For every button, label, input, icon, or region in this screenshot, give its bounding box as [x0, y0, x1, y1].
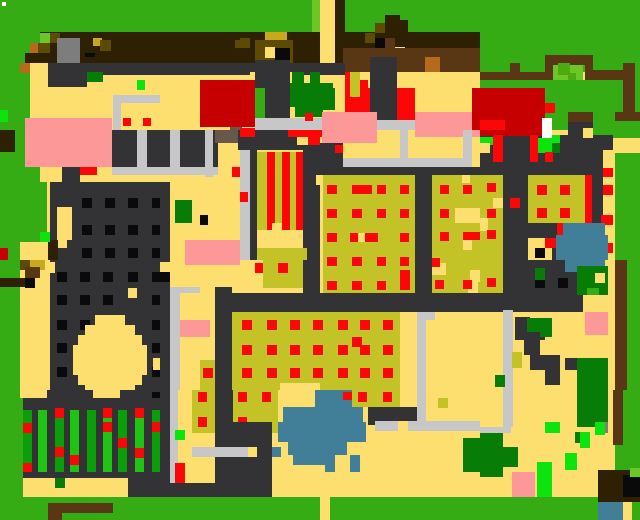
map-tile-paved-path [170, 130, 180, 167]
map-tile-berry-red [537, 185, 547, 195]
map-tile-berry-red [377, 281, 386, 290]
map-tile-hole [535, 248, 545, 258]
map-tile-water [563, 223, 605, 235]
map-tile-berry-red [327, 185, 337, 194]
map-tile-e2 [38, 410, 47, 472]
map-tile-marker [542, 130, 552, 138]
map-tile-berry-red [440, 232, 449, 241]
map-tile-berry-red [80, 167, 97, 175]
map-tile-berry-red [480, 120, 505, 130]
map-tile-wood-wall [568, 112, 593, 122]
map-tile-sand-floor [160, 262, 170, 272]
map-tile-marker [2, 2, 6, 6]
map-tile-berry-red [463, 232, 480, 240]
map-tile-hole [152, 320, 160, 330]
map-tile-hole [152, 295, 160, 305]
map-tile-hole [128, 225, 138, 235]
map-tile-sand-floor [278, 240, 290, 248]
map-tile-bright-plant [175, 430, 185, 440]
map-tile-olive-soil [38, 43, 50, 53]
map-tile-wood-wall [545, 65, 553, 80]
map-tile-sand-floor [320, 472, 330, 520]
map-tile-water [556, 235, 608, 260]
map-tile-berry-red [352, 209, 362, 218]
map-tile-e1 [55, 410, 64, 472]
map-tile-berry-red [377, 185, 386, 194]
map-tile-light-grass [312, 0, 320, 32]
map-tile-berry-red [23, 423, 32, 433]
map-tile-dark-road [215, 390, 233, 453]
map-tile-berry-red [327, 281, 337, 290]
map-tile-berry-red [440, 185, 449, 194]
map-tile-berry-red [335, 145, 343, 153]
map-tile-water [288, 442, 347, 455]
map-tile-sand-floor [493, 198, 503, 208]
map-tile-berry-red [327, 209, 337, 218]
map-tile-light-grass [40, 33, 50, 43]
map-tile-berry-red [352, 257, 362, 266]
map-tile-berry-red [305, 113, 313, 121]
map-tile-sand-floor [97, 167, 112, 175]
map-tile-berry-red [397, 88, 415, 120]
map-tile-berry-red [352, 185, 372, 194]
map-tile-berry-red [296, 152, 303, 230]
map-tile-sand-floor [595, 273, 605, 283]
map-tile-berry-red [123, 118, 131, 126]
map-tile-sand-floor [463, 240, 472, 250]
map-tile-berry-red [400, 185, 409, 194]
map-tile-wood-wall [480, 72, 545, 80]
map-tile-sand-floor [23, 478, 128, 497]
map-tile-berry-red [343, 392, 352, 400]
map-tile-berry-red [510, 198, 520, 208]
map-tile-dark-soil [25, 53, 40, 63]
map-tile-hole [103, 295, 113, 305]
map-tile-hole [80, 295, 90, 305]
map-tile-paved-path [417, 320, 426, 431]
map-tile-e2 [135, 410, 144, 472]
map-tile-red-roof [200, 80, 255, 127]
map-tile-tree [310, 72, 320, 83]
map-tile-berry-red [240, 128, 255, 137]
map-tile-sand-floor [265, 47, 275, 58]
map-tile-hole [152, 272, 160, 282]
map-tile-hole [152, 225, 160, 235]
map-tile-tree [488, 447, 518, 467]
map-tile-tree [463, 438, 480, 472]
map-tile-pink-floor [185, 260, 240, 265]
map-tile-grass [255, 88, 265, 118]
map-tile-dark-road [215, 287, 232, 390]
map-tile-crop-field [257, 248, 307, 260]
map-tile-dark-road [503, 175, 528, 295]
map-tile-taupe-floor [215, 130, 238, 143]
map-tile-berry-red [313, 320, 323, 330]
map-tile-dark-road [565, 358, 577, 370]
map-tile-e [568, 73, 576, 80]
map-tile-sand-floor [23, 390, 47, 398]
map-tile-sand-floor [358, 233, 365, 242]
map-tile-crop-field [512, 352, 522, 368]
map-tile-e1 [87, 410, 96, 472]
map-tile-light-grass [630, 468, 640, 477]
map-tile-berry-red [338, 345, 348, 355]
map-tile-paved-path [417, 312, 435, 320]
map-tile-hole [152, 248, 160, 258]
map-tile-tree [292, 72, 304, 83]
map-tile-crop-field [257, 152, 267, 230]
map-tile-sand-floor [297, 137, 308, 145]
map-tile-sand-floor [455, 208, 480, 223]
map-tile-wood-wall [585, 65, 593, 80]
map-tile-berry-red [560, 208, 570, 218]
map-tile-berry-red [440, 209, 449, 218]
map-tile-sand-floor [78, 335, 142, 345]
map-tile-tree [87, 72, 103, 82]
map-tile-crop-field [275, 152, 282, 230]
map-tile-berry-red [530, 135, 538, 162]
map-tile-berry-red [383, 320, 393, 330]
map-tile-e2 [103, 410, 112, 472]
map-tile-berry-red [313, 345, 323, 355]
map-tile-berry-red [267, 320, 277, 330]
map-tile-bright-plant [537, 462, 552, 497]
map-tile-dark-soil [0, 278, 25, 287]
map-tile-paved-path [375, 421, 480, 431]
map-tile-berry-red [487, 278, 496, 287]
map-tile-berry-red [232, 167, 240, 177]
map-tile-sand-floor [128, 288, 137, 298]
map-tile-hole [128, 272, 138, 282]
map-tile-hole [80, 272, 90, 282]
map-tile-berry-red [560, 185, 570, 195]
map-tile-water [598, 502, 623, 520]
map-tile-berry-red [290, 320, 300, 330]
map-tile-pink-floor [322, 112, 377, 143]
map-tile-tree [495, 375, 505, 387]
map-tile-dark-road [128, 478, 160, 497]
map-tile-pink-floor [585, 312, 608, 335]
map-tile-berry-red [365, 233, 378, 242]
map-tile-berry-red [377, 209, 386, 218]
map-tile-berry-red [55, 408, 64, 418]
map-tile-dark-road [48, 63, 87, 87]
map-tile-sand-floor [45, 262, 55, 273]
map-tile-paved-path [112, 167, 218, 175]
map-tile-dark-road [303, 260, 320, 293]
map-tile-paved-path [343, 158, 472, 167]
map-tile-hole [105, 248, 115, 258]
map-tile-berry-red [238, 392, 247, 402]
map-tile-dark-road [370, 57, 397, 120]
map-tile-berry-red [338, 368, 348, 378]
map-tile-clay [30, 43, 38, 53]
map-tile-sand-floor [248, 447, 257, 457]
map-tile-berry-red [198, 392, 207, 402]
map-tile-tree [552, 143, 560, 153]
game-viewport [0, 0, 640, 520]
map-tile-pink-floor [185, 240, 240, 260]
map-tile-sand-floor [583, 130, 593, 138]
map-tile-wood-wall [615, 112, 640, 121]
map-tile-berry-red [537, 208, 547, 218]
map-tile-sand-floor [40, 167, 62, 182]
map-tile-tree [320, 88, 335, 110]
map-tile-hole [103, 272, 113, 282]
map-tile-wood-wall [48, 513, 62, 520]
map-tile-paved-path [192, 447, 248, 457]
map-tile-berry-red [487, 230, 496, 239]
map-tile-berry-red [352, 337, 362, 347]
map-tile-berry-red [603, 168, 613, 177]
map-tile-crop-field [438, 398, 448, 408]
map-tile-olive-soil [365, 33, 375, 43]
map-tile-berry-red [267, 368, 277, 378]
map-tile-berry-red [350, 233, 358, 242]
map-tile-berry-red [308, 135, 320, 145]
map-tile-hole [82, 248, 92, 258]
map-tile-water [283, 407, 363, 422]
map-tile-bright-plant [552, 135, 560, 143]
map-tile-berry-red [383, 392, 392, 402]
map-tile-sand-floor [462, 175, 470, 183]
map-tile-hole [57, 295, 67, 305]
map-tile-hole [128, 248, 138, 258]
map-tile-sand-floor [57, 207, 72, 240]
map-tile-dark-soil [0, 130, 15, 152]
map-tile-sand-floor [78, 375, 142, 385]
map-tile-bright-plant [137, 80, 145, 90]
map-tile-hole [82, 225, 92, 235]
map-tile-pink-floor [25, 118, 112, 167]
map-tile-hole [160, 272, 170, 282]
map-tile-berry-red [603, 185, 613, 195]
map-tile-water [278, 422, 366, 442]
map-tile-tree [175, 200, 192, 223]
map-tile-dark-road [524, 340, 540, 355]
map-tile-dark-road [62, 167, 80, 183]
map-tile-berry-red [463, 280, 472, 289]
map-tile-berry-red [327, 233, 337, 242]
map-tile-red-roof [0, 248, 8, 260]
map-tile-berry-red [338, 320, 348, 330]
map-tile-sand-floor [121, 103, 160, 118]
map-tile-berry-red [435, 280, 444, 289]
map-tile-sand-floor [613, 138, 640, 153]
map-tile-sand-floor [85, 325, 135, 335]
map-tile-bright-plant [580, 432, 590, 448]
map-tile-berry-red [313, 368, 323, 378]
map-tile-berry-red [203, 368, 213, 378]
map-tile-berry-red [400, 257, 409, 266]
map-tile-berry-red [262, 392, 271, 402]
map-tile-water [325, 455, 335, 472]
map-tile-tree [55, 478, 65, 488]
map-tile-hole [57, 367, 67, 377]
map-tile-berry-red [267, 152, 275, 230]
map-tile-berry-red [103, 422, 112, 432]
map-tile-berry-red [118, 438, 127, 448]
map-tile-berry-red [400, 270, 410, 290]
map-tile-bright-plant [0, 110, 8, 122]
map-tile-crop-field [350, 72, 360, 97]
map-tile-sand-floor [398, 421, 408, 431]
map-tile-sand-floor [57, 240, 67, 248]
map-tile-wood-wall [623, 63, 635, 113]
map-tile-wood-wall [593, 70, 625, 80]
map-tile-bright-plant [40, 232, 50, 242]
map-tile-sand-floor [272, 223, 282, 230]
map-tile-berry-red [70, 455, 79, 465]
map-tile-berry-red [242, 345, 252, 355]
map-tile-clay [425, 57, 440, 72]
map-tile-berry-red [135, 448, 144, 458]
map-tile-berry-red [103, 408, 112, 418]
map-tile-hole [105, 225, 115, 235]
map-tile-olive-soil [235, 40, 245, 48]
map-tile-wood-wall [343, 48, 480, 72]
map-tile-paved-path [503, 310, 513, 427]
map-tile-bright-plant [545, 422, 560, 433]
map-tile-berry-red [463, 185, 472, 194]
map-tile-wood-wall [48, 503, 113, 513]
map-tile-dark-road [303, 150, 320, 260]
map-tile-berry-red [432, 258, 440, 267]
map-tile-hole [558, 278, 568, 288]
map-tile-tree [535, 268, 545, 280]
map-tile-berry-red [400, 209, 409, 218]
map-tile-dark-road [415, 175, 432, 293]
map-tile-berry-red [360, 320, 370, 330]
map-tile-berry-red [360, 368, 370, 378]
map-tile-dark-road [530, 355, 560, 370]
map-tile-berry-red [327, 257, 337, 266]
map-tile-berry-red [23, 463, 32, 472]
map-tile-dark-soil [48, 240, 58, 260]
map-tile-paved-path [137, 130, 147, 167]
map-tile-berry-red [267, 345, 277, 355]
map-tile-hole [82, 198, 92, 208]
map-tile-berry-red [152, 422, 160, 432]
map-tile-tree [577, 358, 608, 427]
map-tile-pink-floor [180, 320, 210, 337]
map-tile-berry-red [198, 417, 207, 427]
map-tile-paved-path [377, 120, 415, 130]
map-tile-berry-red [255, 263, 263, 273]
pixel-world-map[interactable] [0, 0, 640, 520]
map-tile-dark-road [545, 370, 560, 385]
map-tile-sand-floor [73, 345, 147, 375]
map-tile-berry-red [278, 263, 288, 273]
map-tile-hole [57, 320, 67, 330]
map-tile-hole [200, 215, 208, 225]
map-tile-berry-red [358, 392, 367, 402]
map-tile-water [350, 455, 360, 472]
map-tile-hole [152, 198, 160, 208]
map-tile-berry-red [545, 152, 553, 162]
map-tile-berry-red [585, 175, 592, 223]
map-tile-dark-road [320, 167, 483, 175]
map-tile-hole [105, 198, 115, 208]
map-tile-tree [540, 327, 552, 337]
map-tile-olive-soil [100, 40, 111, 51]
map-tile-hole [57, 343, 67, 353]
map-tile-berry-red [493, 135, 503, 162]
map-tile-berry-red [383, 368, 393, 378]
map-tile-wood-wall [510, 63, 520, 72]
map-tile-berry-red [55, 447, 64, 457]
map-tile-bright-plant [595, 422, 605, 435]
map-tile-dark-road [160, 483, 272, 497]
map-tile-wood-wall [25, 267, 40, 278]
map-tile-clay [20, 63, 30, 73]
map-tile-berry-red [290, 345, 300, 355]
map-tile-dark-road [47, 390, 93, 398]
map-tile-bright-plant [565, 453, 577, 470]
map-tile-dark-road [250, 150, 257, 260]
map-tile-hole [25, 278, 35, 288]
map-tile-hole [57, 272, 67, 282]
map-tile-dark-road [160, 390, 170, 490]
map-tile-sand-floor [153, 358, 160, 370]
map-tile-berry-red [143, 118, 151, 126]
map-tile-paved-path [400, 130, 408, 158]
map-tile-berry-red [487, 183, 496, 192]
map-tile-berry-red [290, 368, 300, 378]
map-tile-stone [57, 38, 80, 63]
map-tile-dark-road [232, 293, 583, 312]
map-tile-hole [128, 198, 138, 208]
map-tile-berry-red [242, 320, 252, 330]
map-tile-paved-path [113, 95, 121, 130]
map-tile-sand-floor [623, 502, 632, 520]
map-tile-berry-red [175, 463, 185, 483]
map-tile-bright-plant [537, 138, 552, 153]
map-tile-paved-path [170, 287, 180, 390]
map-tile-sand-floor [95, 315, 125, 325]
map-tile-berry-red [400, 233, 409, 242]
map-tile-wood-wall [615, 260, 627, 390]
map-tile-berry-red [377, 257, 386, 266]
map-tile-berry-red [240, 192, 248, 202]
map-tile-wood-wall [613, 390, 623, 445]
map-tile-water [272, 447, 281, 457]
map-tile-berry-red [360, 80, 368, 88]
map-tile-berry-red [242, 368, 252, 378]
map-tile-sand-floor [480, 143, 490, 153]
map-tile-berry-red [352, 281, 362, 290]
map-tile-sand-floor [280, 383, 320, 390]
map-tile-berry-red [282, 152, 290, 230]
map-tile-paved-path [240, 150, 250, 260]
map-tile-hole [623, 475, 640, 497]
map-tile-grass [587, 288, 599, 295]
map-tile-berry-red [487, 209, 496, 218]
map-tile-paved-path [180, 287, 200, 293]
map-tile-e1 [152, 410, 160, 472]
map-tile-berry-red [383, 345, 393, 355]
map-tile-olive-soil [375, 23, 385, 33]
map-tile-berry-red [135, 408, 144, 418]
map-tile-pink-floor [512, 472, 535, 497]
map-tile-berry-red [545, 103, 555, 113]
map-tile-hole [152, 343, 160, 353]
map-tile-dark-soil [335, 0, 345, 33]
